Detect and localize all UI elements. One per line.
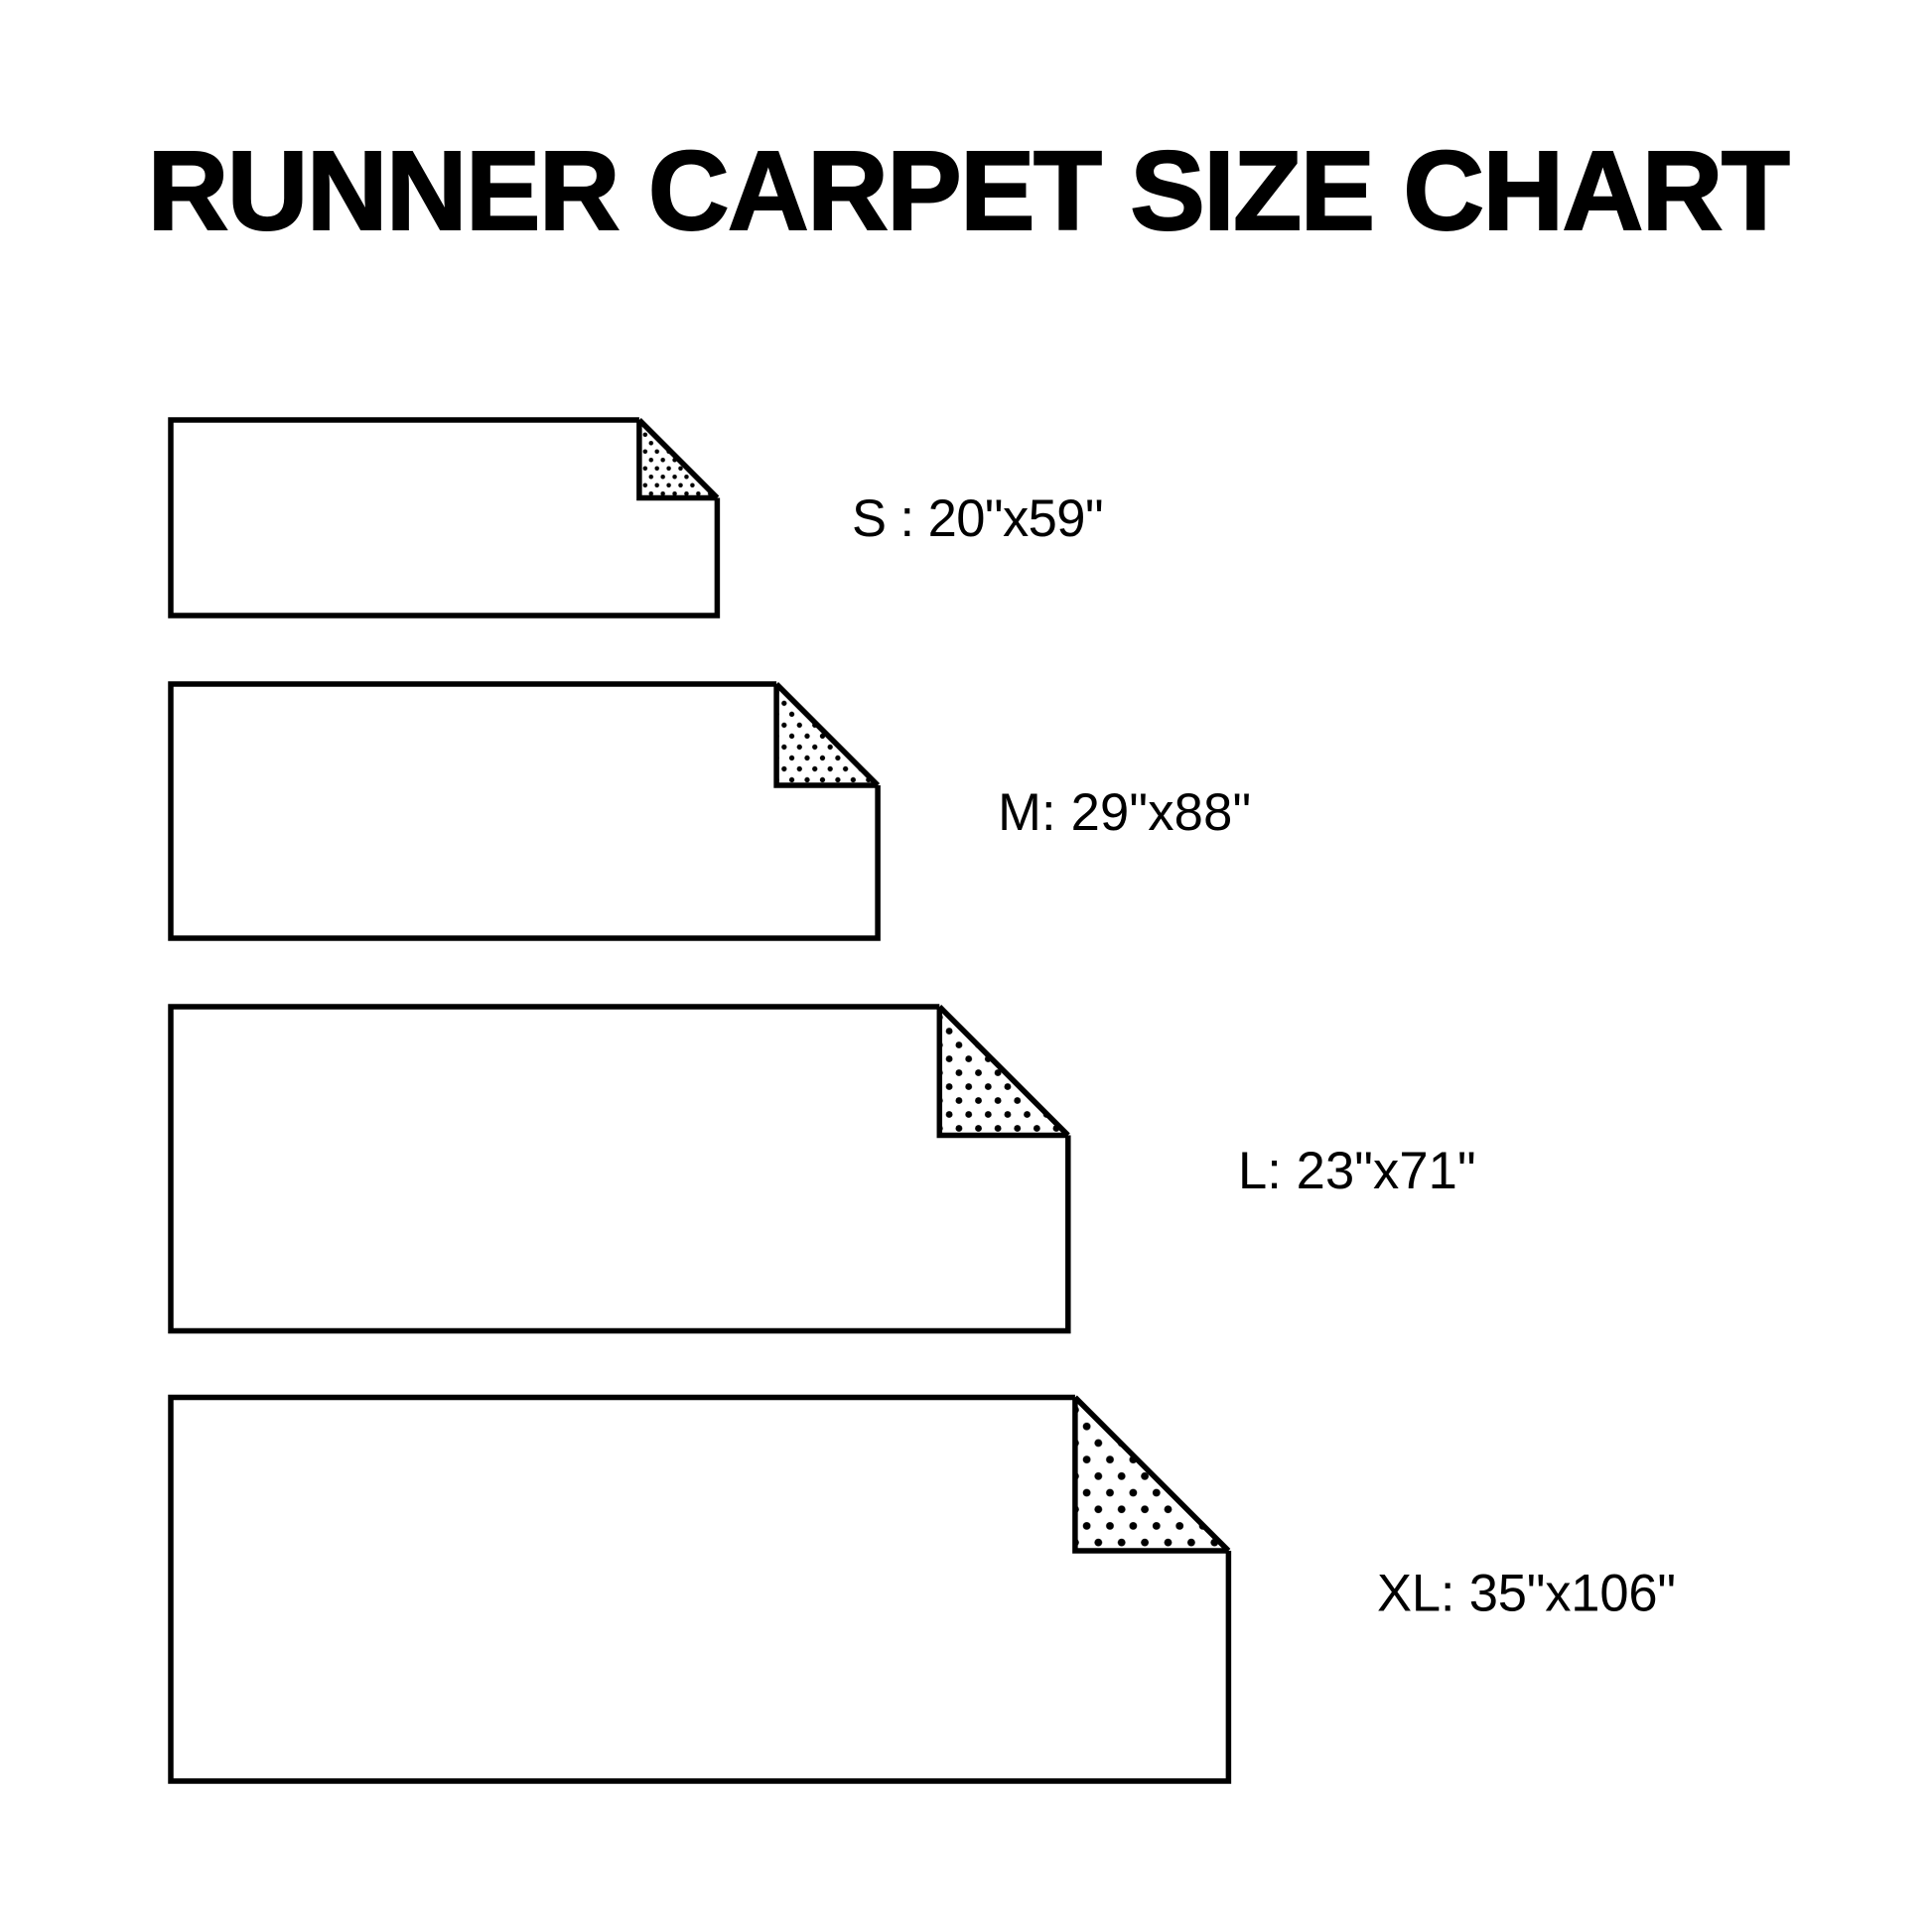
svg-text:RUNNER CARPET SIZE CHART: RUNNER CARPET SIZE CHART [148,128,1789,253]
svg-text:XL: 35"x106": XL: 35"x106" [1377,1564,1676,1622]
svg-text:S : 20"x59": S : 20"x59" [852,489,1103,548]
svg-text:L: 23"x71": L: 23"x71" [1238,1142,1476,1200]
svg-text:M: 29"x88": M: 29"x88" [998,783,1251,842]
